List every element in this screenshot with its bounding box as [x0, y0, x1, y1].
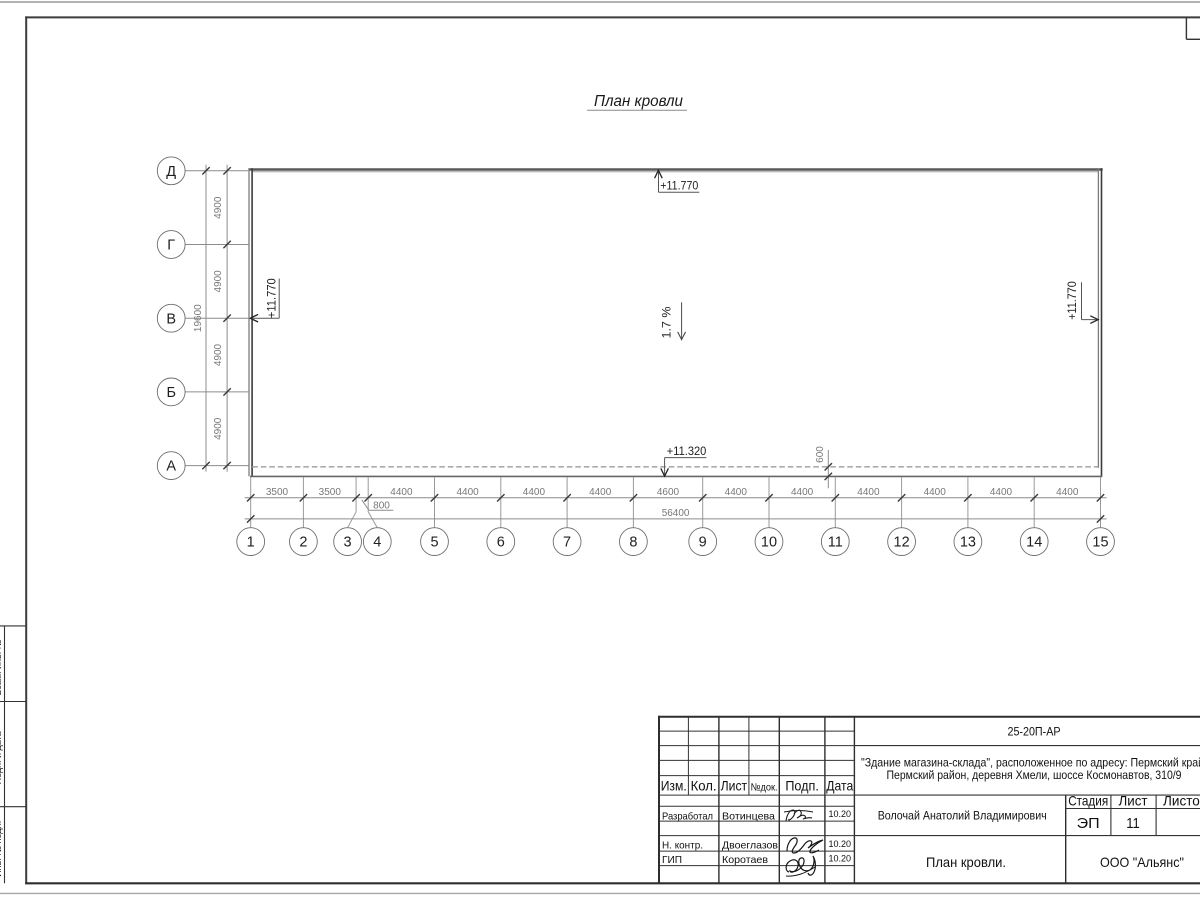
svg-text:4400: 4400 [589, 487, 612, 498]
svg-text:+11.320: +11.320 [667, 446, 707, 458]
svg-text:Двоеглазов: Двоеглазов [722, 839, 778, 851]
svg-text:В: В [166, 311, 176, 327]
svg-text:56400: 56400 [662, 508, 690, 519]
svg-text:Дата: Дата [826, 778, 853, 794]
svg-text:ГИП: ГИП [662, 854, 682, 866]
svg-text:Подп. и дата: Подп. и дата [0, 731, 3, 784]
svg-text:4: 4 [373, 535, 381, 551]
svg-text:Г: Г [167, 238, 175, 254]
svg-text:Взам. инв. №: Взам. инв. № [0, 639, 3, 695]
svg-text:9: 9 [699, 535, 707, 551]
svg-text:Кол.: Кол. [691, 778, 717, 794]
svg-text:3500: 3500 [266, 487, 289, 498]
svg-text:4400: 4400 [725, 487, 748, 498]
svg-text:+11.770: +11.770 [660, 180, 698, 192]
svg-text:4400: 4400 [390, 487, 413, 498]
svg-text:№док.: №док. [751, 782, 778, 794]
svg-text:1.7 %: 1.7 % [661, 307, 673, 339]
svg-text:А: А [166, 459, 176, 475]
svg-text:4900: 4900 [213, 196, 224, 219]
svg-text:5: 5 [430, 535, 438, 551]
svg-text:11: 11 [1126, 815, 1140, 832]
svg-text:Вотинцева: Вотинцева [722, 810, 775, 822]
svg-text:Подп.: Подп. [785, 778, 819, 794]
svg-text:10: 10 [761, 535, 777, 551]
svg-text:4400: 4400 [990, 487, 1013, 498]
svg-text:8: 8 [629, 535, 637, 551]
svg-text:2: 2 [299, 535, 307, 551]
svg-text:4900: 4900 [213, 417, 224, 440]
svg-text:4900: 4900 [213, 270, 224, 293]
svg-text:Пермский район, деревня Хмели,: Пермский район, деревня Хмели, шоссе Кос… [887, 768, 1182, 782]
svg-text:11: 11 [828, 535, 843, 551]
svg-text:4400: 4400 [857, 487, 880, 498]
svg-text:Волочай Анатолий Владимирович: Волочай Анатолий Владимирович [878, 809, 1047, 823]
svg-text:Лист: Лист [1119, 793, 1149, 809]
svg-text:Лист: Лист [721, 778, 748, 794]
svg-text:800: 800 [373, 500, 390, 511]
svg-text:3500: 3500 [319, 487, 342, 498]
svg-text:Изм.: Изм. [661, 778, 687, 794]
svg-text:План кровли.: План кровли. [926, 854, 1006, 870]
svg-text:6: 6 [497, 535, 505, 551]
svg-text:4400: 4400 [924, 487, 947, 498]
svg-text:4400: 4400 [1056, 487, 1079, 498]
svg-text:1: 1 [247, 535, 255, 551]
svg-text:4400: 4400 [456, 487, 479, 498]
svg-text:10.20: 10.20 [829, 809, 852, 819]
svg-text:ООО "Альянс": ООО "Альянс" [1100, 854, 1184, 870]
svg-text:+11.770: +11.770 [1067, 281, 1079, 320]
svg-text:План кровли: План кровли [594, 93, 683, 110]
svg-text:12: 12 [894, 535, 910, 551]
svg-text:10.20: 10.20 [829, 839, 852, 849]
svg-text:4900: 4900 [213, 343, 224, 366]
svg-text:19600: 19600 [193, 304, 204, 332]
svg-text:+11.770: +11.770 [266, 278, 278, 318]
svg-text:10.20: 10.20 [829, 853, 852, 863]
svg-text:Н. контр.: Н. контр. [662, 839, 703, 851]
svg-text:Инв. № подл.: Инв. № подл. [0, 821, 3, 877]
svg-text:Стадия: Стадия [1068, 793, 1108, 809]
svg-text:Д: Д [166, 164, 176, 180]
svg-text:600: 600 [815, 446, 826, 463]
svg-text:Листов: Листов [1163, 793, 1200, 809]
svg-text:4400: 4400 [523, 487, 546, 498]
svg-text:25-20П-АР: 25-20П-АР [1008, 724, 1061, 738]
svg-text:7: 7 [563, 535, 571, 551]
svg-text:Коротаев: Коротаев [722, 854, 768, 866]
svg-text:4600: 4600 [657, 487, 680, 498]
svg-text:ЭП: ЭП [1077, 815, 1100, 832]
svg-text:3: 3 [344, 535, 352, 551]
svg-text:14: 14 [1026, 535, 1042, 551]
svg-text:Разработал: Разработал [662, 810, 713, 822]
svg-text:Б: Б [166, 385, 176, 401]
svg-text:13: 13 [960, 535, 976, 551]
svg-text:15: 15 [1092, 535, 1108, 551]
svg-text:4400: 4400 [791, 487, 814, 498]
